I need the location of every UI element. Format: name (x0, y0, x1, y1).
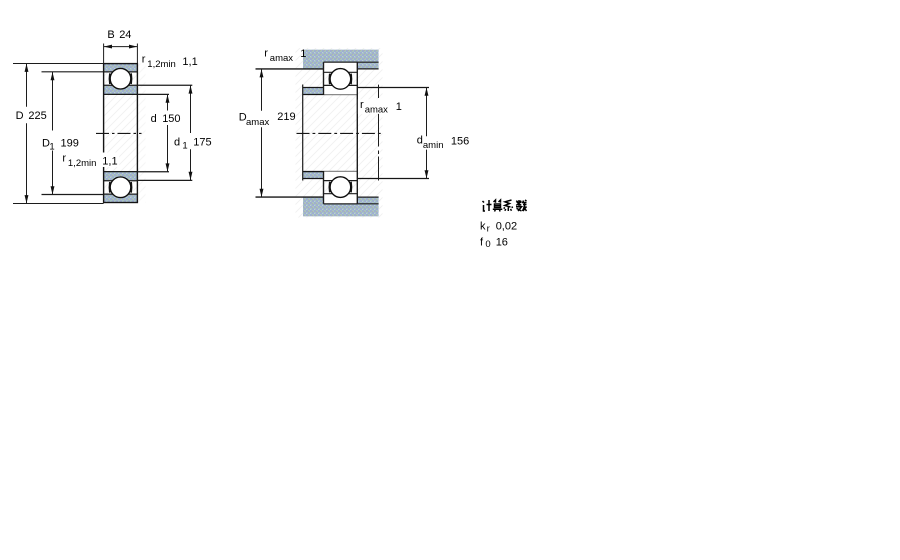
svg-text:k: k (480, 221, 486, 233)
svg-text:amax: amax (246, 117, 269, 128)
svg-text:1,1: 1,1 (182, 56, 197, 68)
svg-text:r: r (142, 54, 146, 66)
svg-text:0,02: 0,02 (496, 221, 517, 233)
svg-text:D: D (16, 110, 24, 122)
svg-text:1: 1 (300, 48, 306, 60)
svg-text:d: d (151, 113, 157, 125)
svg-text:amax: amax (270, 53, 293, 64)
svg-text:219: 219 (277, 111, 295, 123)
svg-text:f: f (480, 236, 484, 248)
svg-text:1,2min: 1,2min (68, 158, 97, 169)
svg-text:r: r (360, 99, 364, 111)
svg-text:16: 16 (496, 236, 508, 248)
svg-text:1,1: 1,1 (102, 155, 117, 167)
svg-text:24: 24 (119, 29, 131, 41)
svg-text:150: 150 (162, 113, 180, 125)
svg-text:0: 0 (485, 239, 490, 250)
svg-text:1: 1 (182, 140, 187, 151)
svg-text:175: 175 (193, 136, 211, 148)
svg-text:d: d (174, 136, 180, 148)
svg-text:1: 1 (396, 101, 402, 113)
svg-text:r: r (264, 47, 268, 59)
svg-text:225: 225 (28, 110, 46, 122)
svg-text:1,2min: 1,2min (147, 59, 176, 70)
svg-text:r: r (62, 153, 66, 165)
svg-text:amax: amax (365, 104, 388, 115)
svg-text:199: 199 (61, 137, 79, 149)
svg-text:r: r (487, 224, 490, 235)
svg-text:1: 1 (49, 141, 54, 152)
svg-text:amin: amin (423, 140, 444, 151)
svg-text:156: 156 (451, 136, 469, 148)
svg-text:B: B (107, 29, 114, 41)
